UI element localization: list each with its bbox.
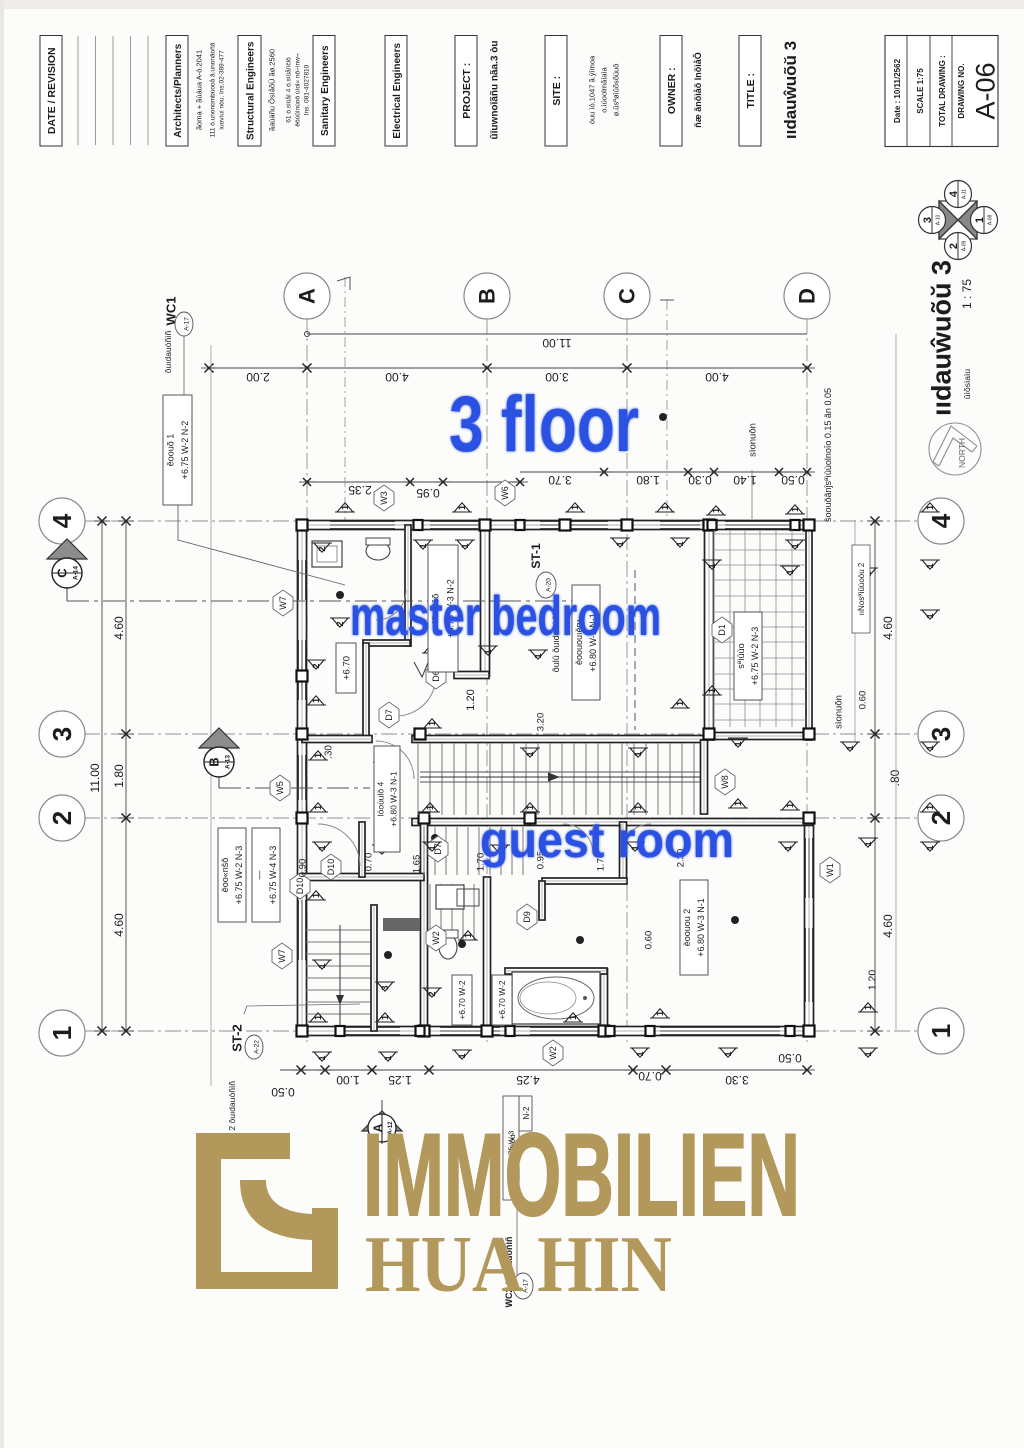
svg-text:1: 1 [707,688,717,693]
svg-text:4.25: 4.25 [516,1073,540,1087]
svg-text:+6.75 W-2 N-3: +6.75 W-2 N-3 [750,627,760,686]
svg-text:4.60: 4.60 [112,616,126,640]
svg-text:master bedroom: master bedroom [350,584,661,647]
svg-text:sìonuŏn: sìonuŏn [747,423,758,457]
svg-text:ěoouŏ 1: ěoouŏ 1 [165,434,175,467]
svg-text:A-08: A-08 [987,215,993,226]
svg-text:1 : 75: 1 : 75 [960,279,974,309]
svg-text:1: 1 [711,508,721,513]
svg-text:0.90: 0.90 [297,859,308,878]
svg-text:D9: D9 [522,911,532,923]
svg-text:B: B [475,288,500,304]
svg-text:W6: W6 [500,486,510,500]
svg-text:1: 1 [707,563,717,568]
svg-text:D: D [795,288,820,304]
svg-text:2: 2 [317,546,327,551]
svg-text:4.60: 4.60 [881,616,895,640]
svg-text:+6.75 W-2 N-2: +6.75 W-2 N-2 [180,421,190,480]
svg-text:0.60: 0.60 [643,931,654,950]
svg-text:0.50: 0.50 [271,1085,295,1099]
svg-text:1: 1 [635,1051,645,1056]
svg-text:+6.80 W-3 N-1: +6.80 W-3 N-1 [388,771,398,827]
svg-text:1: 1 [926,1024,956,1038]
svg-text:1: 1 [790,543,800,548]
svg-text:ěoouou 2: ěoouou 2 [682,909,692,947]
svg-text:1: 1 [427,845,437,850]
svg-text:A-17: A-17 [183,317,190,331]
svg-text:ñæ ãnõìåõ InõìåŎ: ñæ ãnõìåõ InõìåŎ [692,52,703,128]
svg-text:A-06: A-06 [970,62,1000,119]
svg-text:1: 1 [568,1015,578,1020]
svg-text:1: 1 [525,805,535,810]
svg-text:1: 1 [675,541,685,546]
svg-text:0.50: 0.50 [778,1051,802,1065]
svg-text:1: 1 [457,505,467,510]
svg-text:1: 1 [427,721,437,726]
svg-text:ST-2: ST-2 [230,1024,245,1051]
svg-text:1: 1 [383,1055,393,1060]
svg-text:1: 1 [317,963,327,968]
svg-text:1: 1 [733,801,743,806]
svg-text:—: — [254,871,264,880]
svg-text:DATE / REVISION: DATE / REVISION [46,47,58,134]
svg-text:Sanitary Engineers: Sanitary Engineers [320,45,331,136]
svg-text:ST-1: ST-1 [529,543,543,569]
svg-text:1: 1 [733,741,743,746]
svg-text:W7: W7 [278,596,288,610]
svg-text:+6.70 W-2: +6.70 W-2 [457,980,467,1020]
svg-text:1: 1 [317,845,327,850]
svg-text:4: 4 [948,190,960,197]
svg-text:HUA HIN: HUA HIN [365,1221,672,1309]
svg-text:2: 2 [427,991,437,996]
svg-text:D10: D10 [326,859,336,876]
svg-text:4.60: 4.60 [112,913,126,937]
svg-text:2: 2 [926,811,956,825]
svg-text:+6.75 W-4 N-3: +6.75 W-4 N-3 [268,846,278,905]
svg-text:Ins. 081-4027810: Ins. 081-4027810 [303,64,310,115]
svg-text:3: 3 [926,727,956,741]
svg-text:A-14: A-14 [72,566,79,580]
svg-text:1: 1 [463,933,473,938]
svg-text:.30: .30 [324,745,335,759]
svg-text:Date : 10/11/2562: Date : 10/11/2562 [893,58,902,123]
svg-text:1: 1 [675,701,685,706]
svg-text:A-13: A-13 [224,755,231,769]
svg-text:111 ó.unonombùooå ã.unonãoñã: 111 ó.unonombùooå ã.unonãoñã [208,42,216,137]
svg-text:3.20: 3.20 [535,713,546,732]
svg-text:óuu ìò.1047 ã.ýīmoa: óuu ìò.1047 ã.ýīmoa [588,55,597,124]
svg-text:ııdauŵuõŭ 3: ııdauŵuõŭ 3 [926,260,956,416]
svg-text:3.30: 3.30 [725,1073,749,1087]
svg-text:3: 3 [380,985,390,990]
svg-text:1.80: 1.80 [636,473,660,487]
svg-text:W2: W2 [548,1046,558,1060]
svg-text:ãoma + ãùáua A-ò.2041: ãoma + ãùáua A-ò.2041 [195,50,204,130]
svg-text:Electrical Engineers: Electrical Engineers [392,43,403,139]
svg-text:0.70: 0.70 [363,853,374,872]
svg-text:ãaúäñu ÕsìåõÜ ãø.2560: ãaúäñu ÕsìåõÜ ãø.2560 [268,49,277,131]
svg-text:D1: D1 [717,624,727,636]
svg-text:0.50: 0.50 [781,473,805,487]
svg-text:sìonuŏn: sìonuŏn [833,695,844,729]
svg-text:1: 1 [340,505,350,510]
svg-text:+6.70: +6.70 [341,656,352,680]
svg-text:3 floor: 3 floor [449,379,639,468]
svg-text:B: B [207,757,222,766]
svg-text:1: 1 [790,507,800,512]
svg-text:A: A [295,288,320,304]
svg-text:+6.75 W-2 N-3: +6.75 W-2 N-3 [234,846,244,905]
svg-text:W2: W2 [431,931,441,945]
svg-text:1: 1 [660,505,670,510]
svg-text:ûīuwnoīãñu nãa.3 òu: ûīuwnoīãñu nãa.3 òu [490,41,501,140]
svg-text:.80: .80 [888,769,902,786]
svg-text:1: 1 [925,613,935,618]
svg-text:sªìûùo: sªìûùo [736,643,746,668]
svg-text:1: 1 [525,751,535,756]
svg-text:1: 1 [925,745,935,750]
svg-text:1: 1 [925,845,935,850]
svg-text:1: 1 [633,805,643,810]
svg-text:1: 1 [313,1015,323,1020]
svg-text:W5: W5 [275,781,285,795]
svg-text:D7: D7 [384,709,394,721]
svg-text:1: 1 [460,543,470,548]
svg-text:+6.70 W-2: +6.70 W-2 [497,980,507,1020]
svg-text:Structural Engineers: Structural Engineers [246,41,257,140]
svg-text:1: 1 [783,845,793,850]
svg-text:4.00: 4.00 [705,370,729,384]
svg-text:2: 2 [47,811,77,825]
svg-text:1: 1 [313,753,323,758]
svg-text:W8: W8 [720,775,730,789]
svg-text:1: 1 [615,541,625,546]
svg-text:TOTAL DRAWING :: TOTAL DRAWING : [938,55,947,127]
svg-text:1.20: 1.20 [867,970,879,991]
svg-text:1.00: 1.00 [336,1073,360,1087]
svg-text:1: 1 [925,505,935,510]
svg-text:1: 1 [570,505,580,510]
svg-text:C: C [615,288,640,304]
svg-text:PROJECT :: PROJECT : [461,63,473,119]
svg-text:o.ìúoolmãíaìa: o.ìúoolmãíaìa [600,66,609,112]
svg-text:1.65: 1.65 [411,855,422,874]
svg-text:TITLE :: TITLE : [745,73,757,109]
svg-text:1: 1 [863,1051,873,1056]
svg-text:2.35: 2.35 [348,483,372,497]
svg-text:SCALE 1:75: SCALE 1:75 [916,68,925,114]
svg-text:1: 1 [974,217,986,223]
svg-text:2: 2 [335,621,345,626]
svg-text:W1: W1 [825,863,835,877]
svg-text:+6.80 W-3 N-1: +6.80 W-3 N-1 [696,898,706,957]
svg-text:1: 1 [47,1026,77,1040]
svg-text:61 ò.sìûåî 4 ó.sìûåîìčlŏ: 61 ò.sìûåî 4 ó.sìûåîìčlŏ [284,57,292,123]
svg-text:3: 3 [922,217,934,223]
svg-text:lóoùulŏ 4: lóoùulŏ 4 [375,781,385,816]
svg-text:1: 1 [380,1015,390,1020]
svg-text:guest room: guest room [480,812,734,868]
svg-text:1: 1 [311,893,321,898]
svg-text:A-09: A-09 [961,241,967,252]
svg-text:4: 4 [47,513,77,528]
svg-text:2: 2 [311,663,321,668]
svg-text:1: 1 [655,1011,665,1016]
svg-text:ûìŏsìaìu: ûìŏsìaìu [962,369,972,400]
svg-text:WC1: WC1 [164,297,179,326]
svg-text:A-11: A-11 [961,189,967,199]
svg-text:4: 4 [926,513,956,528]
svg-text:3: 3 [47,727,77,741]
svg-text:2.00: 2.00 [246,370,270,384]
svg-text:0.70: 0.70 [638,1069,662,1083]
svg-text:1: 1 [457,1053,467,1058]
svg-text:ø.ûsªøìûõsõúuô: ø.ûsªøìûõsõúuô [612,64,621,117]
svg-text:OWNER :: OWNER : [666,67,678,114]
svg-text:W3: W3 [379,491,389,505]
svg-text:1: 1 [418,543,428,548]
svg-text:2: 2 [948,243,960,249]
svg-text:3.70: 3.70 [548,473,572,487]
svg-text:Architects/Planners: Architects/Planners [173,43,184,137]
svg-text:SITE :: SITE : [551,76,563,106]
svg-text:W7: W7 [277,949,287,963]
svg-text:1: 1 [863,841,873,846]
svg-text:1: 1 [785,569,795,574]
svg-text:DRAWING NO.: DRAWING NO. [957,63,966,118]
svg-text:1: 1 [317,1055,327,1060]
svg-text:ìuovìuì nòu. Ins.02-389-477: ìuovìuì nòu. Ins.02-389-477 [218,50,225,130]
svg-text:ěoo«nŝŏ: ěoo«nŝŏ [220,858,230,893]
svg-text:ııNosªìûùoòu 2: ııNosªìûùoòu 2 [857,562,866,615]
svg-text:1: 1 [925,805,935,810]
svg-text:ııdauŵuõŭ 3: ııdauŵuõŭ 3 [781,41,800,139]
svg-text:A-10: A-10 [935,215,941,226]
svg-text:0.30: 0.30 [688,473,712,487]
svg-text:1: 1 [425,805,435,810]
svg-text:1.20: 1.20 [465,689,477,710]
svg-text:1.40: 1.40 [733,473,757,487]
svg-text:1: 1 [845,745,855,750]
svg-text:NORTH: NORTH [957,438,967,468]
svg-text:A-22: A-22 [253,1040,260,1054]
svg-text:1.80: 1.80 [112,764,126,788]
svg-text:C: C [55,568,70,578]
svg-text:11.00: 11.00 [88,763,102,792]
svg-text:1: 1 [483,649,493,654]
svg-text:1.25: 1.25 [388,1073,412,1087]
svg-text:1: 1 [925,563,935,568]
svg-text:4.00: 4.00 [385,370,409,384]
svg-text:ŏuıdauòñìñ: ŏuıdauòñìñ [163,330,173,373]
svg-text:0.60: 0.60 [857,691,868,710]
svg-text:1: 1 [863,1005,873,1010]
svg-text:D10: D10 [295,878,305,895]
svg-text:4.60: 4.60 [881,914,895,938]
svg-text:1: 1 [311,698,321,703]
svg-text:1: 1 [533,653,543,658]
svg-text:ěōúûìnúoō ùìol« nŏ÷ìnw¬: ěōúûìnúoō ùìol« nŏ÷ìnw¬ [294,53,301,126]
svg-text:11.00: 11.00 [542,336,571,350]
svg-text:1: 1 [785,803,795,808]
svg-text:1: 1 [633,751,643,756]
svg-text:0.95: 0.95 [416,486,440,500]
svg-text:1: 1 [723,1051,733,1056]
svg-text:ŝoouŏãnĵsªìûùolnoīo 0.15 ãn 0.: ŝoouŏãnĵsªìûùolnoīo 0.15 ãn 0.05 [823,388,833,522]
svg-text:1: 1 [313,805,323,810]
